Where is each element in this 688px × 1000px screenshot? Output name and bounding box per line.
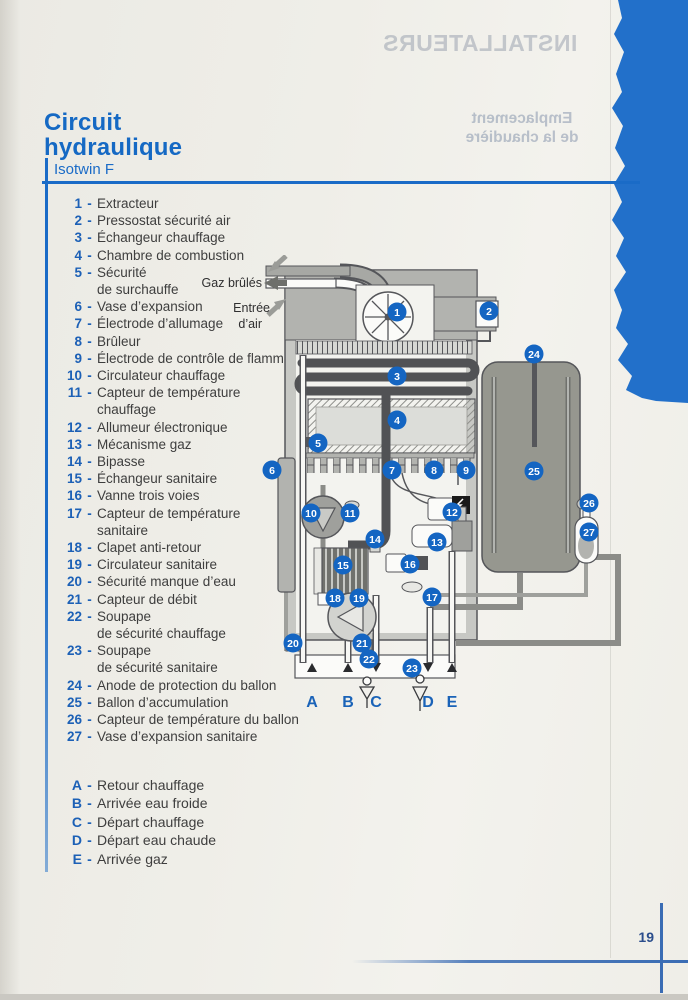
svg-text:5: 5: [315, 438, 321, 450]
tank-anode: [532, 362, 537, 447]
flue-gas-label: Gaz brûlés: [202, 276, 262, 290]
svg-text:12: 12: [446, 507, 458, 519]
svg-text:19: 19: [353, 593, 365, 605]
boiler-diagram: Gaz brûlés Entrée d’air ABCDE 1234567891…: [190, 255, 625, 715]
svg-text:26: 26: [583, 498, 595, 510]
connection-item: D-Départ eau chaude: [58, 831, 278, 849]
svg-text:22: 22: [363, 654, 375, 666]
svg-text:9: 9: [463, 465, 469, 477]
legend-item: 1-Extracteur: [58, 195, 310, 212]
dhw-temp-sensor: [402, 582, 422, 592]
svg-text:8: 8: [431, 465, 437, 477]
model-subtitle: Isotwin F: [54, 161, 114, 178]
svg-text:16: 16: [404, 559, 416, 571]
footer-rule-horizontal: [352, 960, 688, 963]
bleed-heading-line2: de la chaudière: [466, 129, 579, 146]
bleed-banner-text: INSTALLATEURS: [340, 30, 620, 57]
connections-legend: A-Retour chauffageB-Arrivée eau froideC-…: [58, 776, 278, 868]
air-intake-label-1: Entrée: [233, 301, 270, 315]
svg-text:10: 10: [305, 508, 317, 520]
svg-text:24: 24: [528, 349, 540, 361]
svg-text:27: 27: [583, 527, 595, 539]
legend-item: 2-Pressostat sécurité air: [58, 212, 310, 229]
svg-text:4: 4: [394, 415, 400, 427]
svg-text:23: 23: [406, 663, 418, 675]
port-letter-D: D: [422, 694, 434, 711]
svg-text:18: 18: [329, 593, 341, 605]
connection-item: C-Départ chauffage: [58, 813, 278, 831]
svg-text:13: 13: [431, 537, 443, 549]
manual-page: INSTALLATEURS Emplacementde la chaudière…: [0, 0, 688, 1000]
expansion-vessel: [278, 458, 295, 592]
svg-text:20: 20: [287, 638, 299, 650]
title-rule: [42, 181, 640, 184]
title-line2: hydraulique: [44, 135, 182, 160]
legend-item: 27-Vase d’expansion sanitaire: [58, 728, 310, 745]
svg-text:7: 7: [389, 465, 395, 477]
svg-text:25: 25: [528, 466, 540, 478]
footer-rule-vertical: [660, 903, 663, 993]
bleed-heading: Emplacementde la chaudière: [446, 109, 598, 147]
connection-item: A-Retour chauffage: [58, 776, 278, 794]
port-letter-C: C: [370, 694, 382, 711]
svg-text:1: 1: [394, 307, 400, 319]
title-line1: Circuit: [44, 110, 182, 135]
svg-text:2: 2: [486, 306, 492, 318]
svg-text:3: 3: [394, 371, 400, 383]
page-title: Circuit hydraulique: [44, 110, 182, 160]
port-letter-B: B: [342, 694, 354, 711]
svg-text:6: 6: [269, 465, 275, 477]
port-letter-E: E: [447, 694, 458, 711]
page-bottom-edge: [0, 994, 688, 1000]
svg-text:15: 15: [337, 560, 349, 572]
port-letter-A: A: [306, 694, 318, 711]
page-number: 19: [626, 929, 654, 945]
svg-text:11: 11: [344, 508, 355, 520]
svg-text:14: 14: [369, 534, 381, 546]
connection-item: E-Arrivée gaz: [58, 850, 278, 868]
left-rule: [45, 158, 48, 872]
bleed-heading-line1: Emplacement: [472, 110, 573, 127]
legend-item: 3-Échangeur chauffage: [58, 229, 310, 246]
svg-text:21: 21: [356, 638, 368, 650]
svg-text:17: 17: [426, 592, 438, 604]
air-intake-label-2: d’air: [238, 317, 262, 331]
connection-item: B-Arrivée eau froide: [58, 794, 278, 812]
